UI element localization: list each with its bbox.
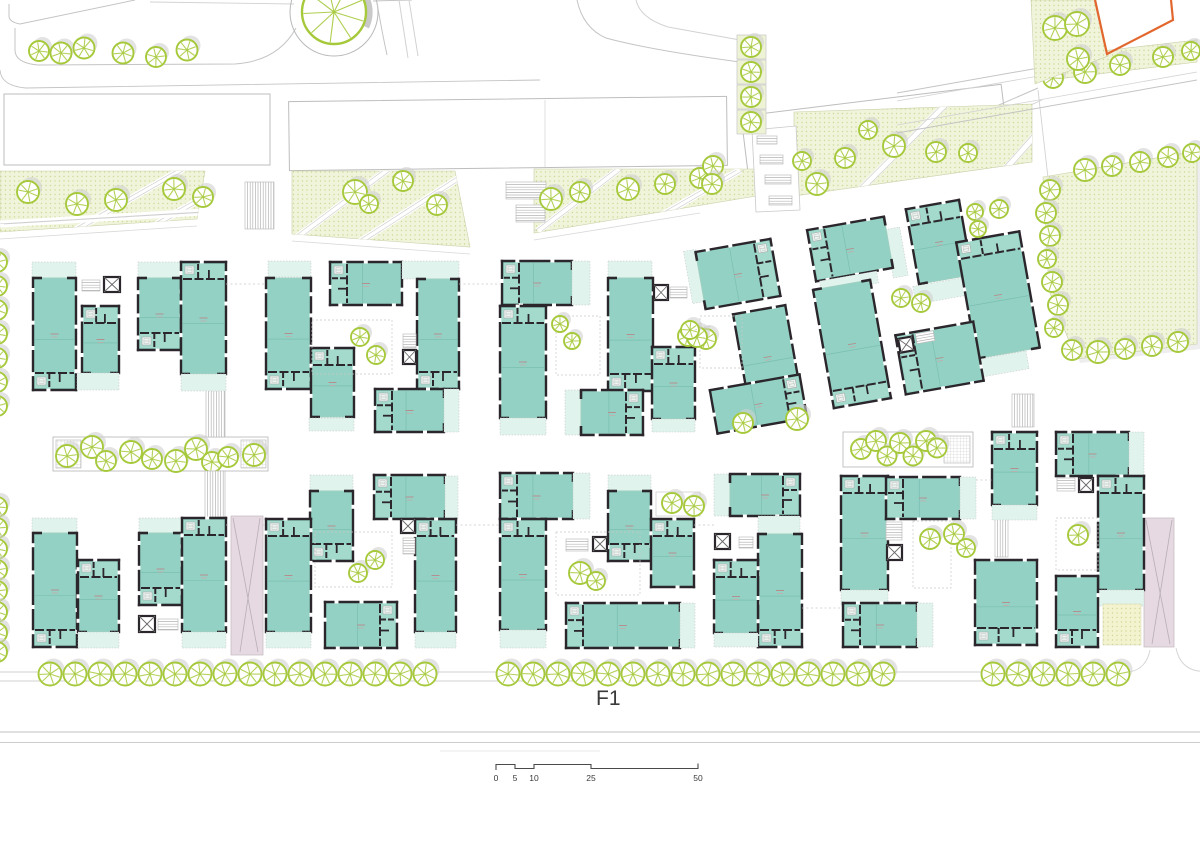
svg-text:50: 50 (693, 773, 703, 783)
svg-text:10: 10 (529, 773, 539, 783)
svg-text:0: 0 (494, 773, 499, 783)
svg-text:F1: F1 (596, 687, 621, 710)
svg-text:25: 25 (586, 773, 596, 783)
svg-text:5: 5 (513, 773, 518, 783)
